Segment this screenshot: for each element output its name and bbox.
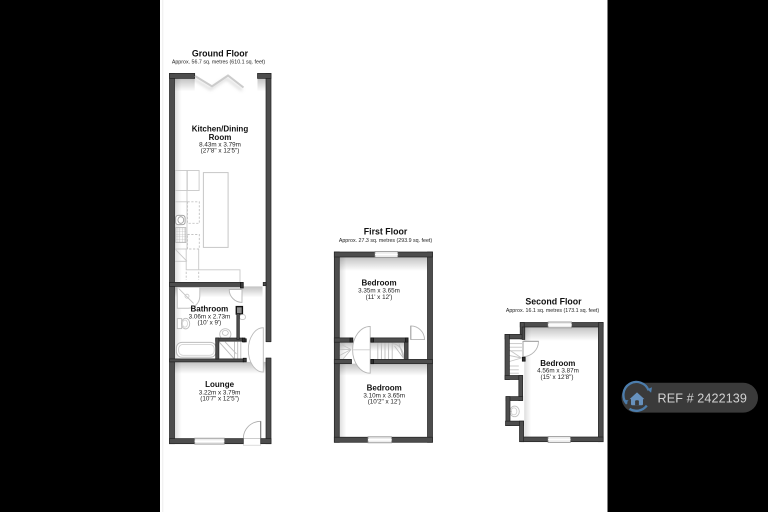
svg-text:(10'7" x 12'5"): (10'7" x 12'5") [200,396,239,403]
svg-text:(27'8" x 12'5"): (27'8" x 12'5") [201,148,240,155]
svg-text:Lounge: Lounge [205,380,234,389]
svg-text:(10' x 9'): (10' x 9') [198,320,222,327]
svg-text:Bedroom: Bedroom [361,279,396,288]
svg-text:REF # 2422139: REF # 2422139 [658,391,748,405]
svg-text:Approx. 16.1 sq. metres (173.1: Approx. 16.1 sq. metres (173.1 sq. feet) [506,308,600,314]
svg-text:First Floor: First Floor [364,226,408,236]
svg-text:(15' x 12'8"): (15' x 12'8") [541,374,574,381]
svg-text:(11' x 12'): (11' x 12') [366,294,393,301]
svg-text:Second Floor: Second Floor [525,297,582,307]
svg-text:(10'2" x 12'): (10'2" x 12') [368,399,401,406]
svg-text:Ground Floor: Ground Floor [192,49,249,59]
svg-text:Bedroom: Bedroom [367,383,402,392]
svg-text:Bathroom: Bathroom [191,305,229,314]
svg-text:Approx. 27.3 sq. metres (293.9: Approx. 27.3 sq. metres (293.9 sq. feet) [339,238,433,244]
svg-text:Approx. 56.7 sq. metres (610.1: Approx. 56.7 sq. metres (610.1 sq. feet) [172,60,266,66]
